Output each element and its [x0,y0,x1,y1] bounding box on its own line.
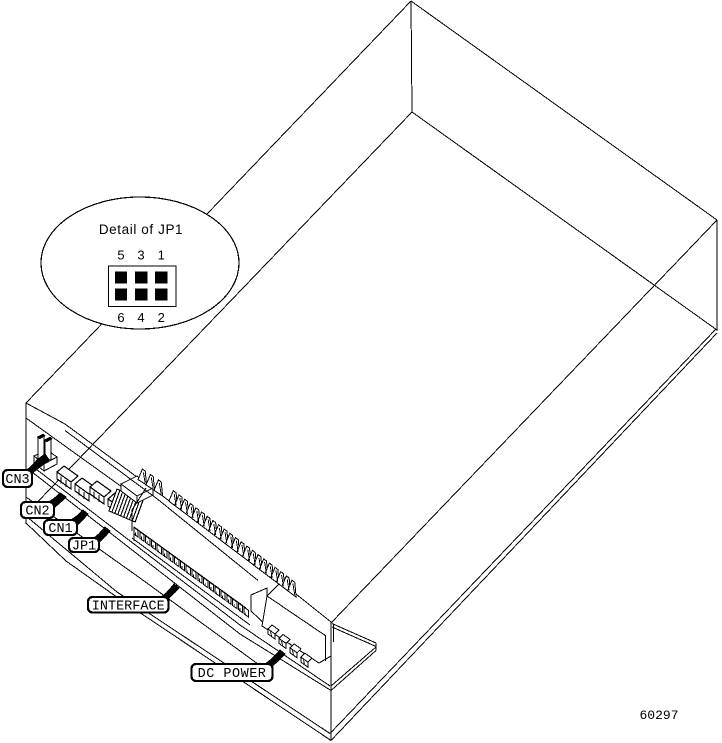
svg-text:CN3: CN3 [5,473,29,488]
svg-text:Detail of JP1: Detail of JP1 [99,222,183,237]
svg-text:3: 3 [137,248,144,263]
svg-text:1: 1 [158,248,165,263]
svg-text:6: 6 [117,310,124,325]
svg-text:INTERFACE: INTERFACE [92,599,165,614]
svg-text:60297: 60297 [639,708,678,723]
svg-text:CN1: CN1 [48,522,72,537]
svg-text:5: 5 [117,248,124,263]
svg-text:DC POWER: DC POWER [198,667,267,682]
svg-text:CN2: CN2 [25,505,49,520]
svg-text:JP1: JP1 [72,540,96,555]
svg-text:2: 2 [158,310,165,325]
svg-text:4: 4 [137,310,144,325]
